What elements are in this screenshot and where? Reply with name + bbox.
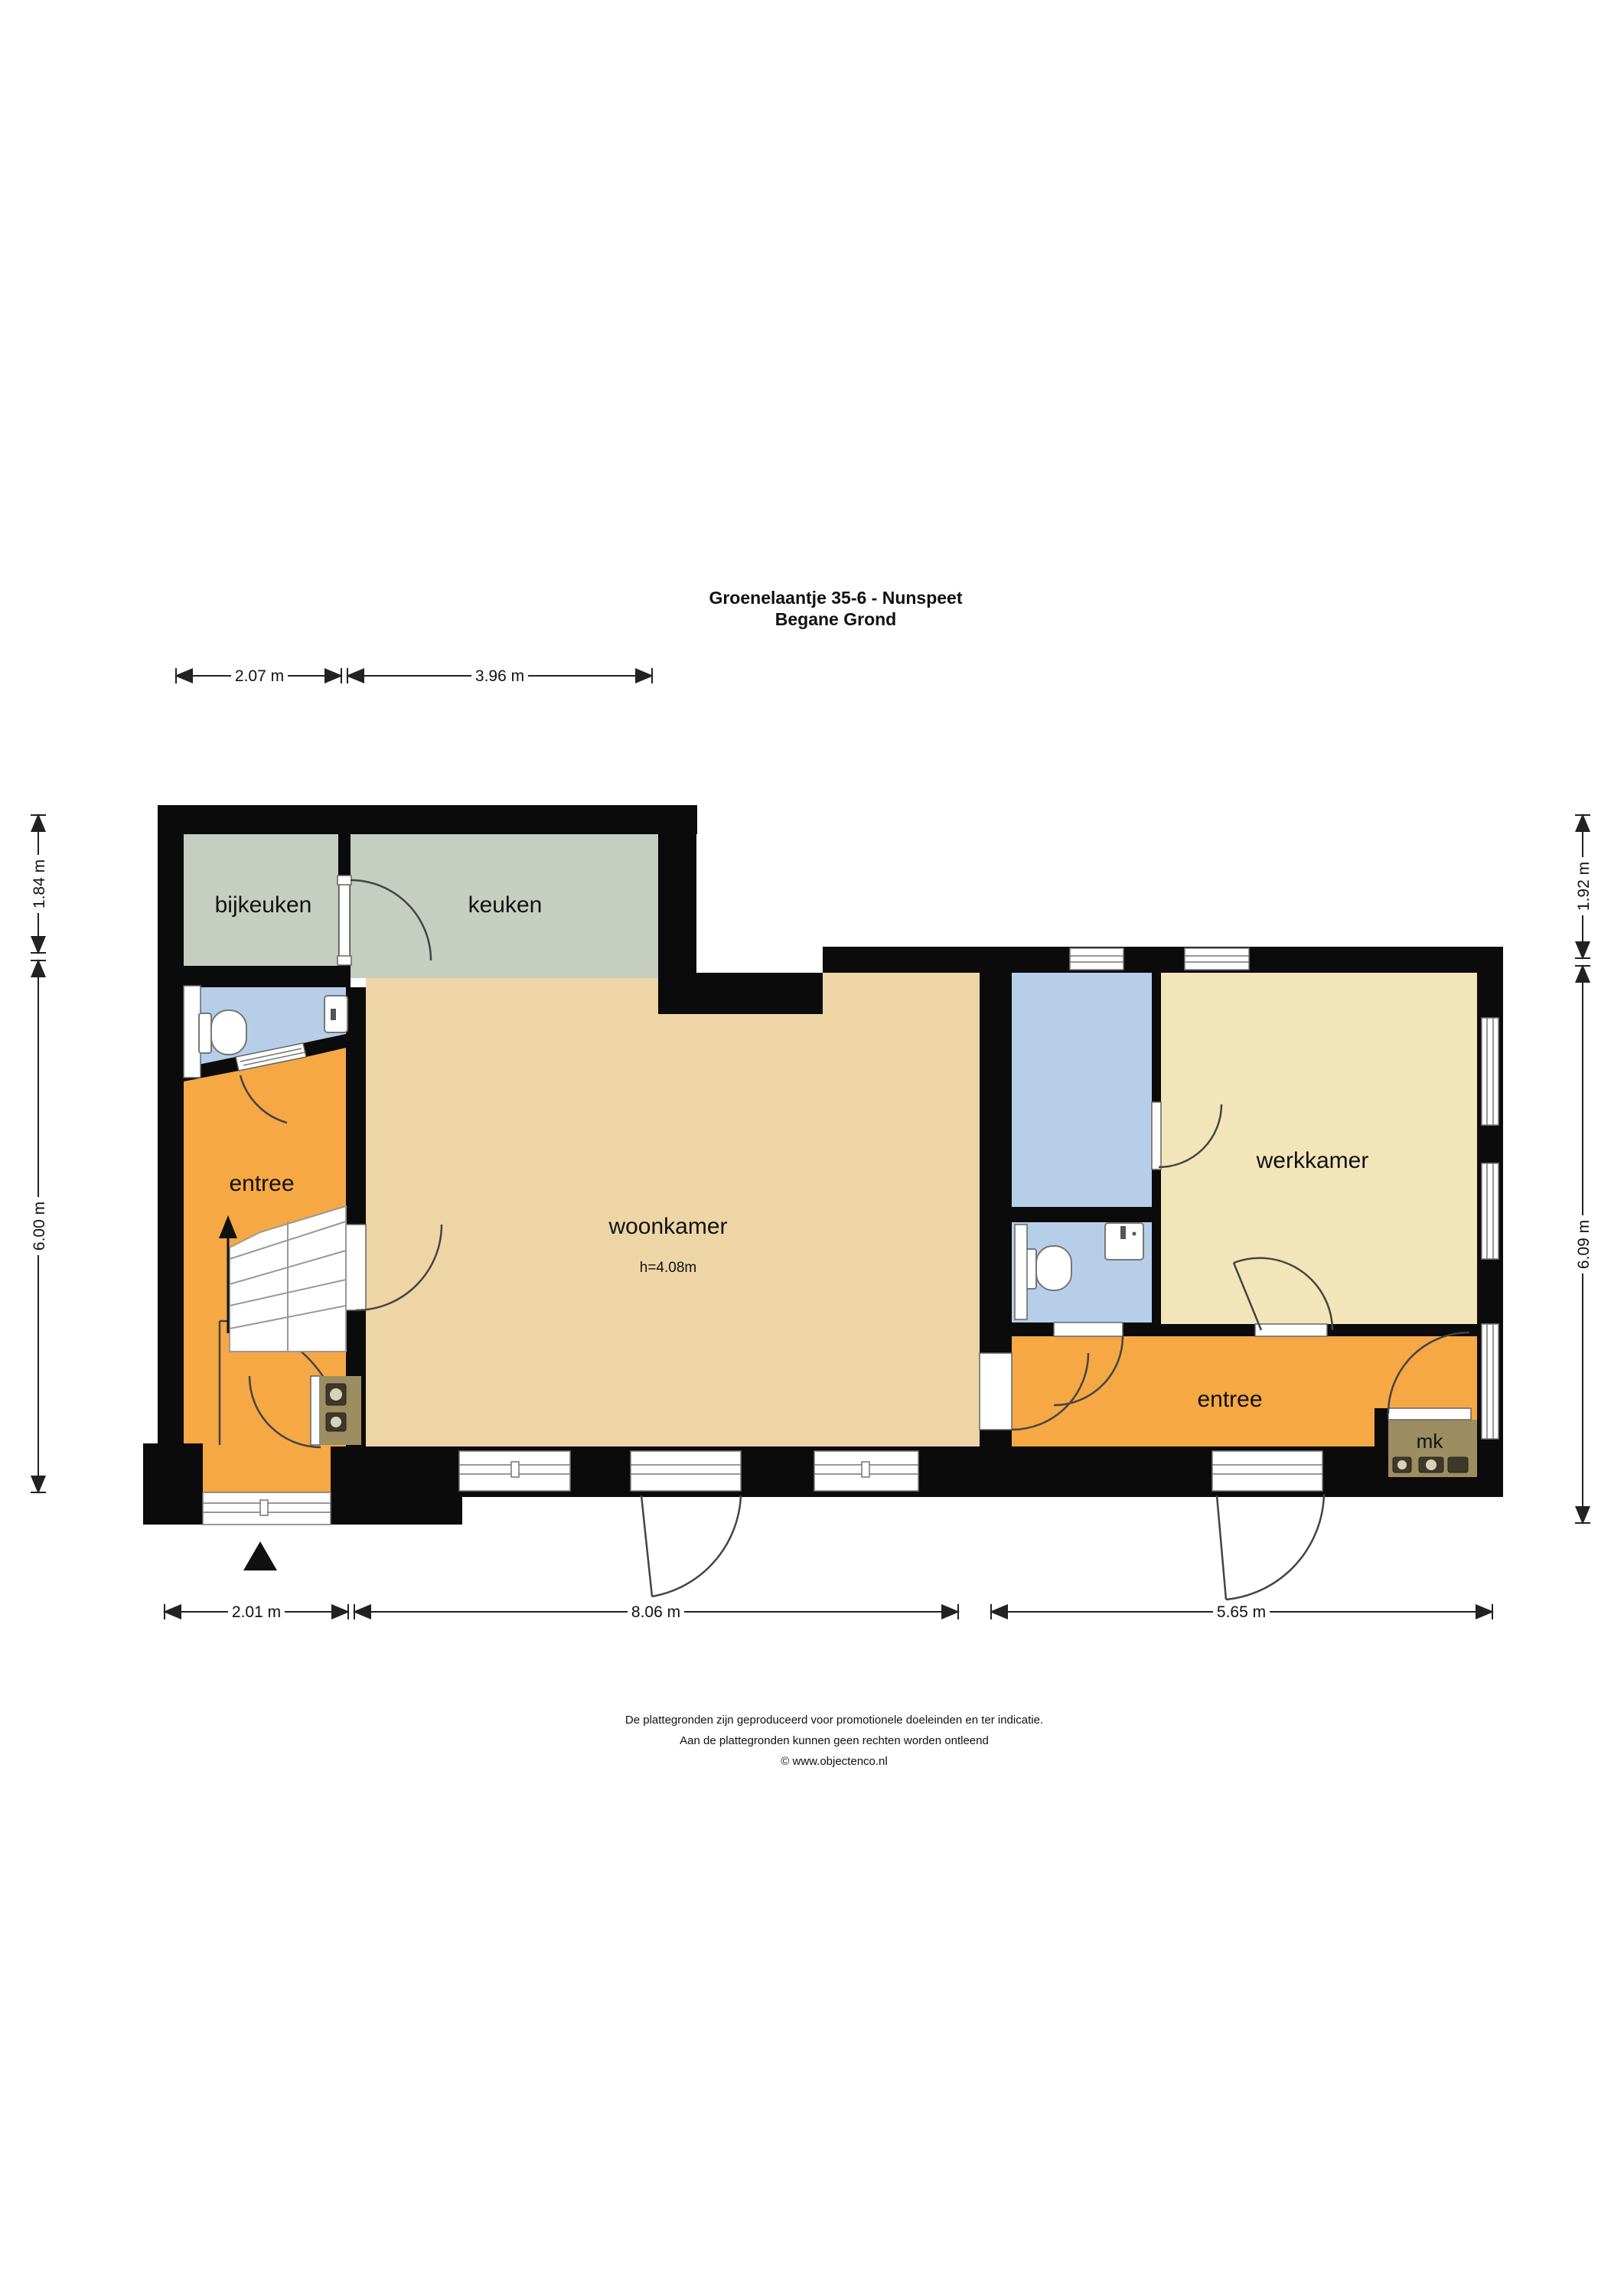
dimension-bottom-1: 2.01 m xyxy=(165,1601,348,1622)
plan-subtitle: Begane Grond xyxy=(775,609,896,629)
sink-icon xyxy=(1105,1223,1143,1260)
svg-text:1.92 m: 1.92 m xyxy=(1575,862,1593,911)
toilet2-left-strip xyxy=(1015,1225,1027,1319)
label-woonkamer: woonkamer xyxy=(608,1214,727,1239)
door-toilet1 xyxy=(184,986,201,1078)
wall-porch-right xyxy=(331,1446,462,1525)
window-bottom-2 xyxy=(814,1451,918,1491)
wall-porch-left xyxy=(143,1443,203,1525)
wall-mk-stub xyxy=(1375,1408,1388,1446)
label-bijkeuken: bijkeuken xyxy=(215,892,312,918)
toilet-icon xyxy=(199,1010,246,1055)
wall-top-main xyxy=(823,947,1503,973)
svg-text:5.65 m: 5.65 m xyxy=(1217,1603,1266,1621)
mk-closet-left xyxy=(320,1376,361,1445)
label-entree-left: entree xyxy=(229,1171,294,1196)
entrance-arrow-icon xyxy=(243,1541,277,1570)
wall-annex-top xyxy=(158,805,697,834)
svg-text:6.00 m: 6.00 m xyxy=(31,1202,48,1251)
dimension-left-1: 1.84 m xyxy=(28,815,49,953)
wall-top-step xyxy=(658,973,823,1014)
window-right-1 xyxy=(1482,1018,1498,1125)
window-right-2 xyxy=(1482,1163,1498,1259)
svg-text:1.84 m: 1.84 m xyxy=(31,859,48,908)
dimension-right-2: 6.09 m xyxy=(1573,966,1593,1523)
sink-icon xyxy=(324,996,347,1032)
door-bottom-entree xyxy=(1212,1451,1324,1600)
meter-icon xyxy=(1397,1460,1407,1469)
window-right-3 xyxy=(1482,1324,1498,1439)
room-woonkamer-floor xyxy=(366,973,980,1446)
dimension-bottom-2: 8.06 m xyxy=(354,1601,958,1622)
svg-text:3.96 m: 3.96 m xyxy=(475,667,524,685)
svg-text:8.06 m: 8.06 m xyxy=(631,1603,680,1621)
dimension-top-2: 3.96 m xyxy=(347,665,652,686)
meter-icon xyxy=(331,1417,341,1427)
floorplan-canvas: Groenelaantje 35-6 - Nunspeet Begane Gro… xyxy=(0,0,1624,2296)
porch-floor xyxy=(203,1446,331,1495)
footer-copyright: © www.objectenco.nl xyxy=(781,1755,887,1768)
dimension-right-1: 1.92 m xyxy=(1573,815,1593,958)
label-werkkamer: werkkamer xyxy=(1256,1148,1369,1173)
meter-icon xyxy=(1448,1457,1468,1473)
dimension-top-1: 2.07 m xyxy=(176,665,341,686)
toilet-icon xyxy=(1024,1246,1071,1290)
room-blue-floor xyxy=(1012,973,1152,1207)
dimension-bottom-3: 5.65 m xyxy=(991,1601,1492,1622)
window-bottom-1 xyxy=(459,1451,570,1491)
meter-icon xyxy=(330,1388,342,1401)
label-mk: mk xyxy=(1417,1430,1444,1453)
window-top-2 xyxy=(1185,948,1249,970)
dimension-left-2: 6.00 m xyxy=(28,960,49,1492)
plan-title: Groenelaantje 35-6 - Nunspeet xyxy=(709,588,962,608)
footer-disclaimer-2: Aan de plattegronden kunnen geen rechten… xyxy=(680,1734,989,1747)
floorplan-page: Groenelaantje 35-6 - Nunspeet Begane Gro… xyxy=(0,0,1624,2296)
label-entree-right: entree xyxy=(1197,1387,1262,1412)
door-bottom-woonkamer xyxy=(631,1451,741,1596)
footer-disclaimer-1: De plattegronden zijn geproduceerd voor … xyxy=(625,1714,1043,1727)
wall-blue-bottom xyxy=(1012,1207,1152,1222)
label-keuken: keuken xyxy=(468,892,543,918)
wall-annex-left xyxy=(158,805,184,986)
window-top-1 xyxy=(1070,948,1123,970)
svg-text:2.07 m: 2.07 m xyxy=(235,667,284,685)
svg-text:6.09 m: 6.09 m xyxy=(1575,1220,1593,1269)
meter-icon xyxy=(1426,1459,1436,1470)
label-woonkamer-height: h=4.08m xyxy=(640,1260,696,1276)
wall-bijkeuken-bottom xyxy=(158,966,351,987)
svg-text:2.01 m: 2.01 m xyxy=(232,1603,281,1621)
wall-left-main xyxy=(158,986,184,1448)
